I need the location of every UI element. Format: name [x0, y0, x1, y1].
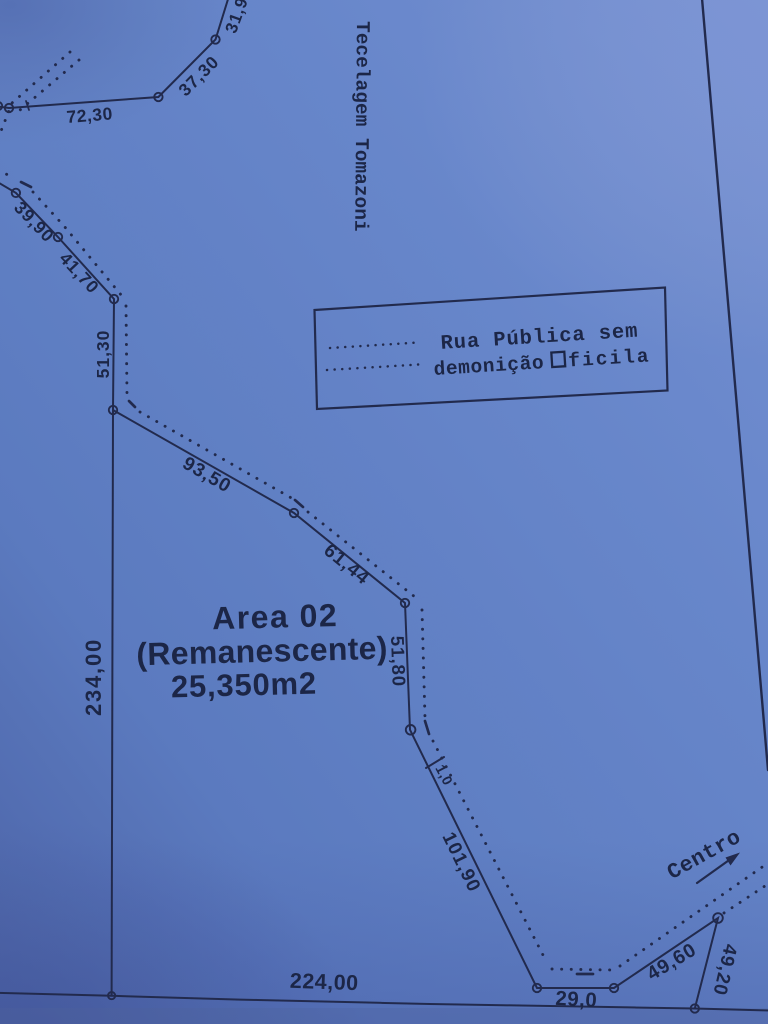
svg-text:29,0: 29,0 — [555, 987, 598, 1012]
svg-text:Tecelagem Tomazoni: Tecelagem Tomazoni — [349, 21, 373, 232]
svg-text:51,30: 51,30 — [93, 330, 113, 379]
svg-text:(Remanescente): (Remanescente) — [136, 630, 388, 673]
svg-text:72,30: 72,30 — [66, 103, 114, 127]
svg-text:224,00: 224,00 — [289, 969, 359, 995]
svg-text:25,350m2: 25,350m2 — [170, 666, 317, 705]
svg-text:51,80: 51,80 — [387, 635, 410, 687]
svg-text:234,00: 234,00 — [81, 638, 106, 716]
svg-text:Area 02: Area 02 — [212, 597, 339, 636]
